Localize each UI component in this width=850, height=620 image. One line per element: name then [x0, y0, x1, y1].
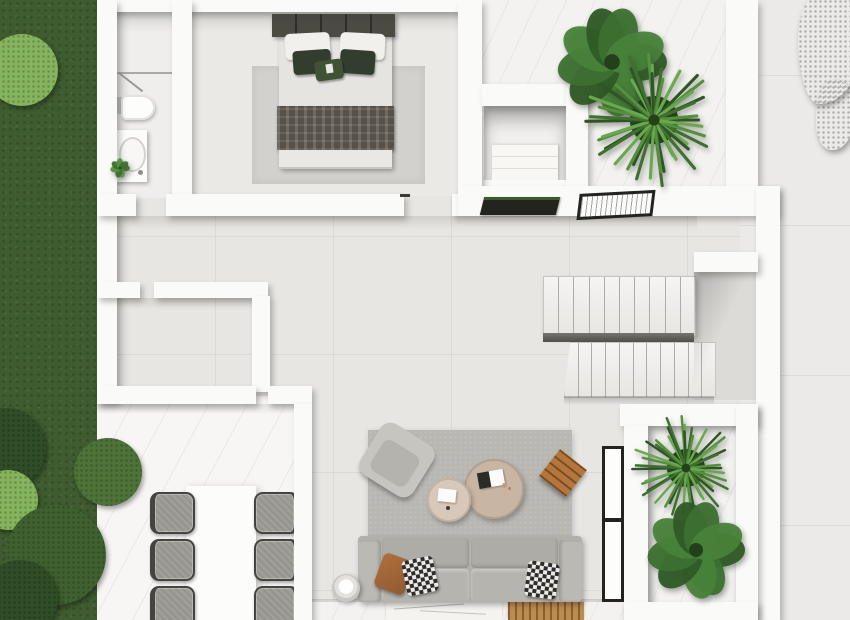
stair-tread [559, 277, 574, 335]
coffee-table-sprig [502, 483, 507, 488]
wall-hall-top-b [166, 194, 404, 216]
stair-tread [666, 277, 681, 335]
dining-chair [254, 539, 299, 581]
stair-tread [647, 343, 661, 397]
small-table-tray [437, 488, 456, 503]
dining-chair [150, 539, 195, 581]
vanity-soap [138, 170, 143, 175]
stair-tread [606, 343, 620, 397]
wall-lower-patio-bottom [624, 602, 758, 620]
dining-chairs-left [150, 492, 195, 620]
stair-tread [702, 343, 715, 397]
wall-planter-box [480, 197, 560, 215]
coffee-table-book [477, 469, 505, 489]
dining-chair [150, 586, 195, 620]
stair-tread [634, 343, 648, 397]
doormat [508, 602, 584, 620]
dining-table [186, 486, 256, 620]
wall-landing [694, 252, 758, 272]
toilet [121, 95, 155, 120]
wall-upper-patio-right [726, 0, 758, 188]
living-room-glass-wall [602, 446, 624, 602]
sketch-line-2 [420, 610, 486, 614]
small-table-item [446, 506, 450, 510]
stair-tread [620, 343, 634, 397]
stair-tread [635, 277, 650, 335]
stair-tread [574, 277, 589, 335]
hedge-top-right-lower [816, 80, 850, 150]
bed-sheet-foot [279, 150, 392, 169]
wall-bottomleft-b [268, 386, 312, 404]
bush-round [74, 438, 142, 506]
dining-chair [254, 492, 299, 534]
stairs-gap-slot [543, 333, 694, 342]
wall-mid-b [154, 282, 268, 298]
lower-patio-fiddle-plant [646, 500, 746, 600]
dining-chairs-right [254, 492, 299, 620]
wall-right-exterior [756, 186, 780, 620]
stair-tread [675, 343, 689, 397]
book-cover [477, 471, 492, 489]
stairs-upper-flight [543, 276, 696, 336]
armchair-seat [368, 437, 423, 490]
bedroom-door-mark [400, 194, 410, 197]
glass-mullion [602, 518, 624, 522]
wall-hall-top-a [97, 194, 136, 216]
stair-tread [605, 277, 620, 335]
wall-terrace-divider [294, 404, 312, 620]
wall-bedroom-right [458, 0, 482, 188]
stair-tread [544, 277, 559, 335]
floor-plan-canvas [0, 0, 850, 620]
side-stool-round [332, 574, 360, 602]
sofa-pillow-checker-right [524, 560, 561, 600]
stair-tread [592, 343, 606, 397]
stair-tread [590, 277, 605, 335]
bed-throw-pillow-tag [325, 64, 333, 74]
stair-tread [620, 277, 635, 335]
coffee-table-small [427, 478, 471, 522]
upper-patio-palm [583, 49, 725, 191]
vanity-plant [110, 158, 130, 178]
stair-tread [689, 343, 703, 397]
sketch-line-1 [394, 604, 464, 610]
bed-blanket [277, 106, 394, 150]
stair-tread [681, 277, 695, 335]
shower-glass-line [117, 72, 172, 74]
stairs-lower-flight [564, 342, 716, 398]
bed-pillow-dark-right [339, 49, 376, 75]
coffee-table-large [464, 459, 524, 519]
wall-top [97, 0, 458, 12]
dining-chair [254, 586, 299, 620]
sofa-arm-right [559, 540, 582, 602]
wall-grille-panel [576, 190, 655, 220]
stair-tread [661, 343, 675, 397]
wardrobe-linens [492, 144, 558, 180]
wall-bathroom-right [172, 0, 192, 198]
stair-tread [650, 277, 665, 335]
wall-mid-a [97, 282, 140, 298]
stair-tread [579, 343, 593, 397]
wall-bottomleft-a [97, 386, 256, 404]
dining-chair [150, 492, 195, 534]
wall-storage-right [252, 296, 270, 392]
